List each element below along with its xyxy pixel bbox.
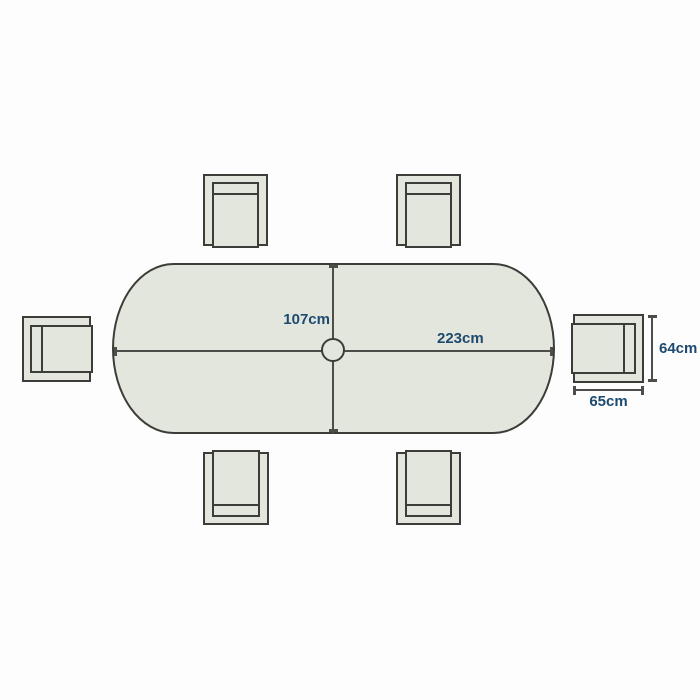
chair-width-dimension-line — [573, 389, 644, 391]
chair-top-left — [203, 174, 268, 246]
chair-bottom-right — [396, 452, 461, 525]
chair-seat — [212, 182, 259, 248]
dimension-tick — [114, 347, 117, 356]
table-width-label: 107cm — [280, 312, 330, 328]
dimension-tick — [648, 379, 657, 382]
dimension-tick — [329, 429, 338, 432]
chair-seat — [405, 450, 452, 517]
chair-right — [573, 314, 644, 383]
chair-backrest-line — [214, 184, 257, 195]
chair-backrest-line — [623, 325, 634, 372]
chair-backrest-line — [32, 327, 43, 371]
chair-bottom-left — [203, 452, 269, 525]
chair-top-right — [396, 174, 461, 246]
chair-left — [22, 316, 91, 382]
chair-backrest-line — [407, 504, 450, 515]
chair-depth-label: 64cm — [659, 341, 697, 357]
chair-width-label: 65cm — [571, 394, 646, 410]
chair-seat — [571, 323, 636, 374]
furniture-dimensions-diagram: 107cm 223cm 64cm — [0, 0, 700, 700]
parasol-hole — [321, 338, 345, 362]
table-length-label: 223cm — [437, 331, 484, 347]
chair-depth-dimension-line — [651, 315, 653, 382]
chair-backrest-line — [407, 184, 450, 195]
chair-backrest-line — [214, 504, 258, 515]
dimension-tick — [550, 347, 553, 356]
chair-seat — [405, 182, 452, 248]
dimension-tick — [329, 265, 338, 268]
chair-seat — [212, 450, 260, 517]
chair-seat — [30, 325, 93, 373]
dimension-tick — [648, 315, 657, 318]
